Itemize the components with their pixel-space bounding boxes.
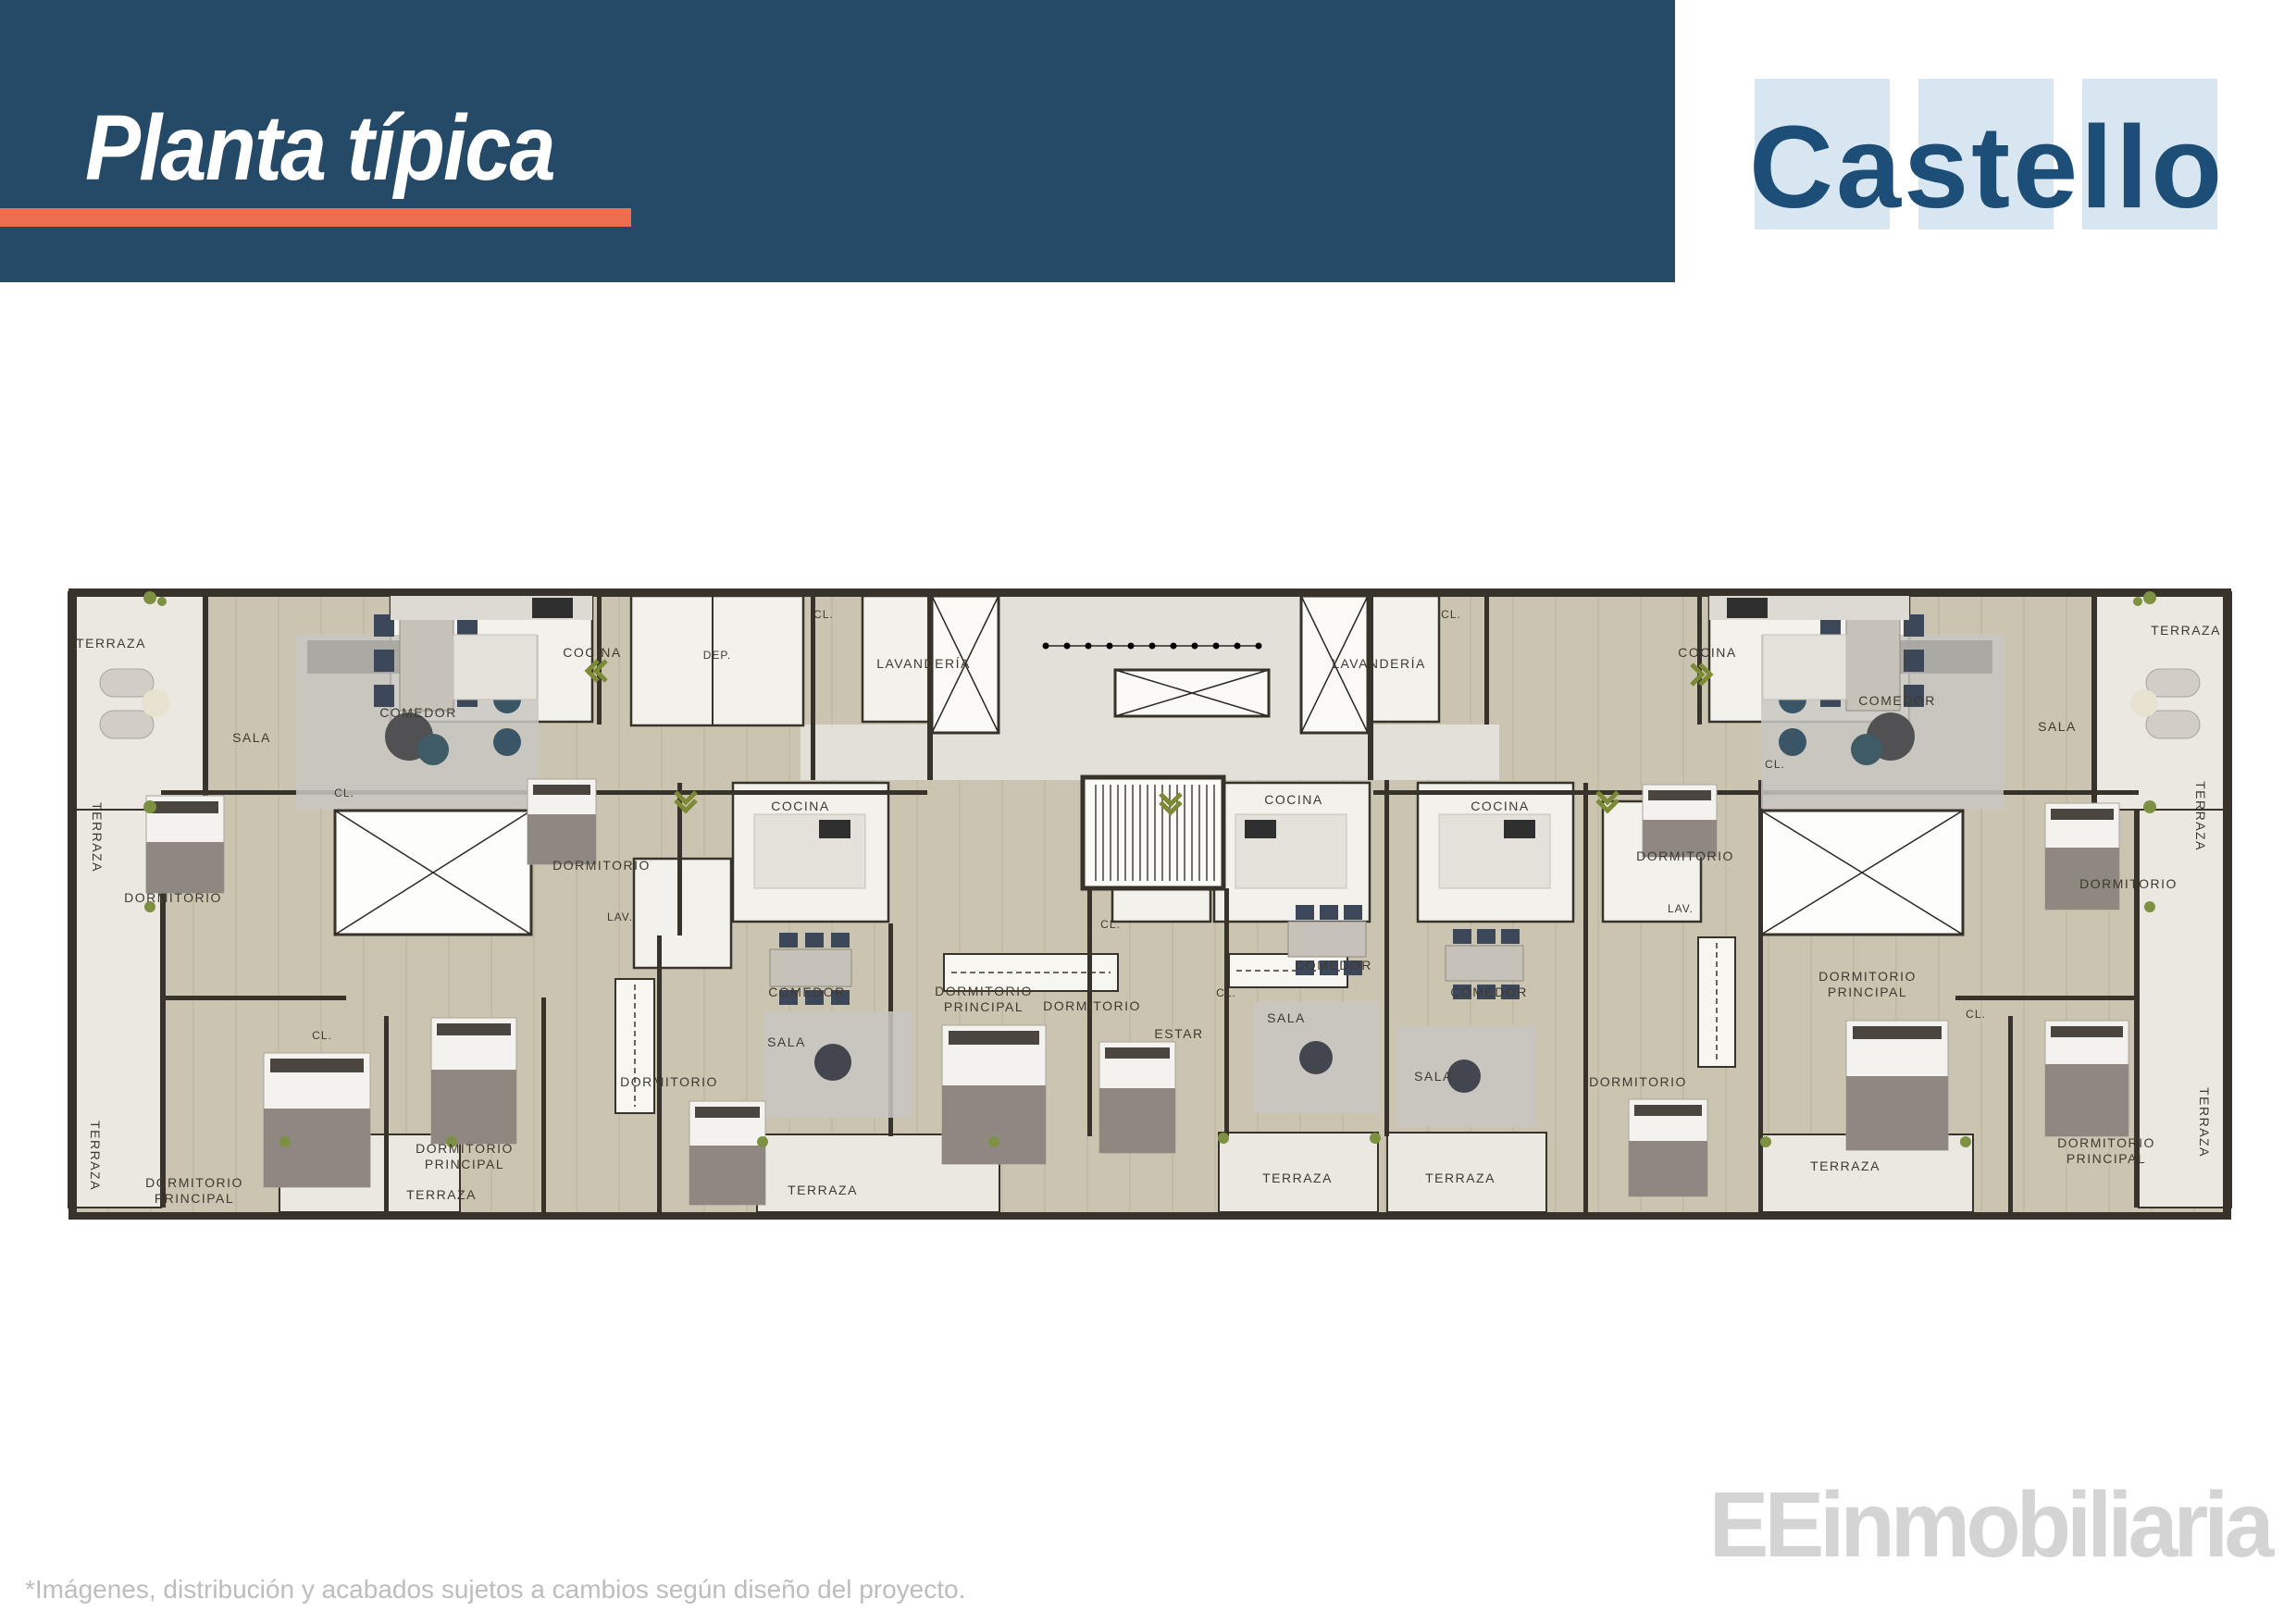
room-label-comedor: COMEDOR (1858, 693, 1936, 708)
room-label-cl: CL. (1216, 986, 1236, 999)
room-label-comedor: COMEDOR (379, 705, 457, 720)
room-label-dormitorio: DORMITORIOPRINCIPAL (416, 1141, 514, 1171)
room-label-cocina: COCINA (563, 645, 621, 660)
room-label-lavander-a: LAVANDERÍA (876, 656, 971, 671)
logo-text: Castello (1749, 109, 2225, 226)
room-label-dormitorio: DORMITORIOPRINCIPAL (145, 1175, 243, 1206)
room-label-terraza: TERRAZA (76, 636, 146, 650)
room-label-cocina: COCINA (1264, 792, 1322, 807)
room-label-cl: CL. (312, 1029, 332, 1042)
room-label-dormitorio: DORMITORIO (552, 858, 651, 873)
room-label-terraza: TERRAZA (1810, 1158, 1880, 1173)
room-label-dormitorio: DORMITORIO (1043, 998, 1141, 1013)
room-label-dormitorio: DORMITORIO (1636, 849, 1734, 863)
room-label-comedor: COMEDOR (1295, 958, 1372, 973)
room-label-cl: CL. (813, 608, 834, 621)
room-label-terraza: TERRAZA (788, 1183, 858, 1197)
room-label-terraza: TERRAZA (1425, 1171, 1496, 1185)
room-label-dormitorio: DORMITORIO (620, 1074, 718, 1089)
room-label-cocina: COCINA (1678, 645, 1736, 660)
room-label-lav: LAV. (1668, 902, 1694, 915)
page-title: Planta típica (85, 102, 554, 194)
room-label-sala: SALA (232, 730, 271, 745)
room-label-dormitorio: DORMITORIOPRINCIPAL (2057, 1135, 2155, 1166)
room-label-terraza: TERRAZA (2151, 623, 2221, 638)
room-label-sala: SALA (1267, 1010, 1306, 1025)
accent-bar (0, 208, 631, 227)
room-label-dormitorio: DORMITORIOPRINCIPAL (1818, 969, 1917, 999)
room-label-comedor: COMEDOR (1450, 985, 1528, 999)
floor-plan: TERRAZASALACOMEDORCOCINADEP.CL.LAVANDERÍ… (65, 581, 2235, 1220)
room-label-terraza: TERRAZA (90, 802, 105, 873)
room-label-terraza: TERRAZA (2197, 1087, 2212, 1158)
room-label-cl: CL. (1966, 1008, 1986, 1021)
room-label-dep: DEP. (703, 649, 731, 662)
room-label-terraza: TERRAZA (88, 1121, 103, 1191)
room-label-lav: LAV. (607, 911, 633, 923)
room-label-dormitorio: DORMITORIO (1589, 1074, 1687, 1089)
header-band: Planta típica (0, 0, 1675, 282)
room-label-lavander-a: LAVANDERÍA (1332, 656, 1426, 671)
room-label-estar: ESTAR (1154, 1026, 1203, 1041)
room-label-comedor: COMEDOR (768, 985, 846, 999)
room-label-terraza: TERRAZA (1262, 1171, 1333, 1185)
staircase (1083, 777, 1223, 888)
room-label-dormitorio: DORMITORIOPRINCIPAL (935, 984, 1033, 1014)
room-label-cocina: COCINA (1471, 799, 1529, 813)
room-label-cl: CL. (334, 787, 354, 799)
room-label-dormitorio: DORMITORIO (2079, 876, 2178, 891)
room-label-sala: SALA (2038, 719, 2077, 734)
room-label-sala: SALA (767, 1035, 806, 1049)
room-label-cl: CL. (1765, 758, 1785, 771)
room-label-cl: CL. (1100, 918, 1121, 931)
room-label-dormitorio: DORMITORIO (124, 890, 222, 905)
room-label-cocina: COCINA (771, 799, 829, 813)
room-label-terraza: TERRAZA (2193, 781, 2208, 851)
room-label-terraza: TERRAZA (406, 1187, 477, 1202)
room-label-sala: SALA (1414, 1069, 1453, 1084)
footer-brand: EEinmobiliaria (1709, 1479, 2270, 1571)
page: Planta típica Castello (0, 0, 2296, 1623)
disclaimer-text: *Imágenes, distribución y acabados sujet… (25, 1575, 965, 1604)
room-label-cl: CL. (1441, 608, 1461, 621)
